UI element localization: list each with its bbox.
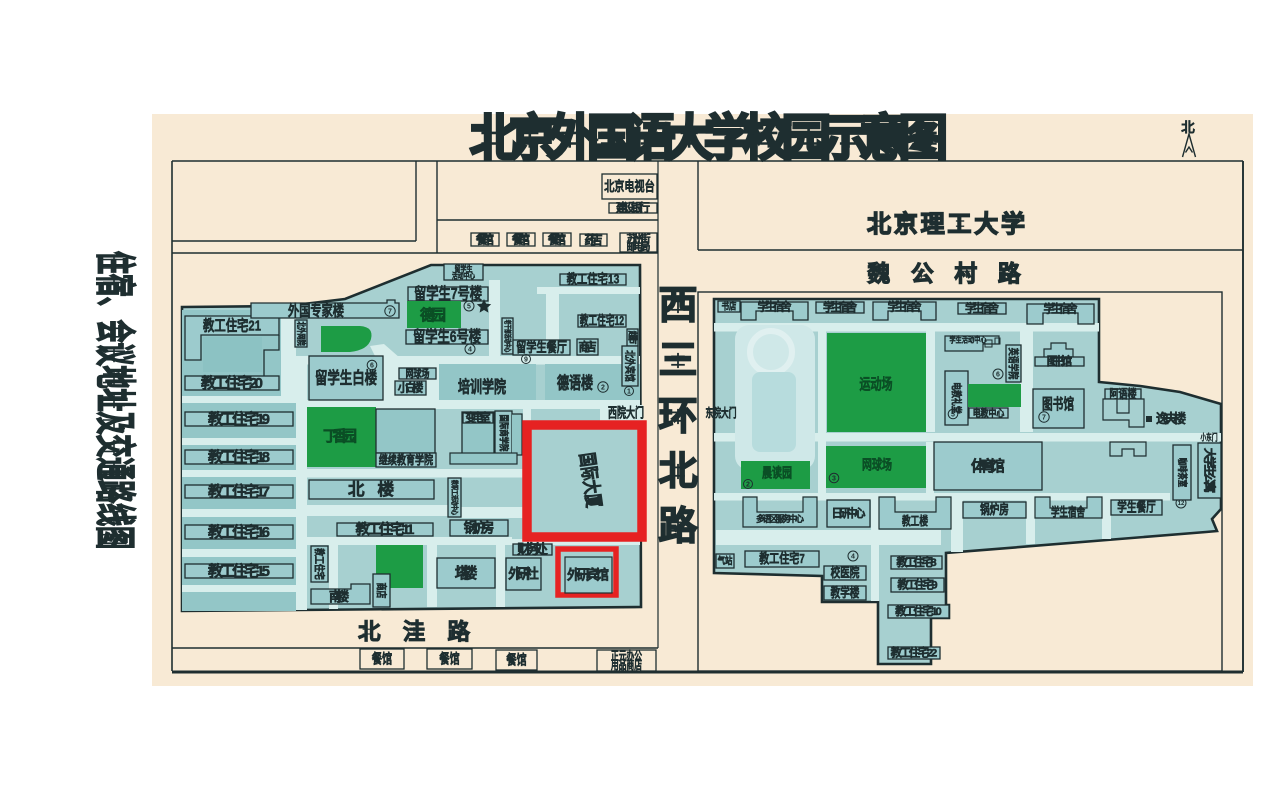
- svg-text:活动中心: 活动中心: [452, 271, 476, 281]
- svg-text:教工住宅19: 教工住宅19: [207, 410, 270, 428]
- svg-text:北京外国语大学校园示意图: 北京外国语大学校园示意图: [470, 111, 948, 166]
- svg-text:日研中心: 日研中心: [832, 506, 867, 520]
- svg-text:晨读园: 晨读园: [762, 464, 792, 480]
- svg-text:培训学院: 培训学院: [458, 376, 506, 396]
- svg-text:超市: 超市: [628, 330, 639, 345]
- svg-text:教工住宅16: 教工住宅16: [207, 523, 270, 541]
- svg-text:餐馆: 餐馆: [548, 231, 566, 246]
- svg-text:学生宿舍: 学生宿舍: [1051, 504, 1086, 519]
- svg-text:餐馆: 餐馆: [506, 651, 527, 667]
- svg-text:网球场: 网球场: [406, 367, 430, 380]
- svg-text:7: 7: [388, 309, 392, 316]
- svg-text:学生宿舍: 学生宿舍: [888, 300, 923, 314]
- svg-text:小东门: 小东门: [1200, 431, 1218, 442]
- svg-text:学生活动中心: 学生活动中心: [950, 335, 988, 345]
- svg-text:塔楼: 塔楼: [455, 564, 478, 582]
- svg-text:网球场: 网球场: [862, 456, 892, 472]
- svg-text:学生宿舍: 学生宿舍: [1044, 302, 1079, 316]
- svg-text:用品商店: 用品商店: [610, 657, 642, 672]
- svg-text:餐馆: 餐馆: [439, 650, 460, 666]
- svg-text:5: 5: [467, 304, 471, 311]
- svg-text:学生宿舍: 学生宿舍: [823, 300, 858, 314]
- svg-text:气站: 气站: [717, 554, 733, 567]
- svg-text:教工住宅: 教工住宅: [313, 547, 326, 580]
- svg-text:体育馆: 体育馆: [971, 457, 1005, 475]
- svg-text:教职工活动中心: 教职工活动中心: [450, 479, 459, 515]
- svg-text:7: 7: [1042, 415, 1046, 422]
- svg-text:教工住宅12: 教工住宅12: [579, 313, 624, 328]
- svg-text:外研社: 外研社: [508, 565, 539, 581]
- svg-text:学生宿舍: 学生宿舍: [758, 300, 793, 314]
- svg-text:财务处: 财务处: [516, 541, 548, 557]
- svg-text:药店: 药店: [584, 232, 602, 247]
- svg-text:学生餐厅: 学生餐厅: [1117, 500, 1156, 515]
- svg-text:建设银行: 建设银行: [616, 201, 650, 215]
- svg-text:变电室: 变电室: [465, 411, 490, 425]
- svg-text:国际商学院: 国际商学院: [497, 415, 510, 452]
- svg-text:1: 1: [627, 389, 631, 396]
- svg-text:9: 9: [524, 357, 528, 364]
- svg-text:咖啡茶室: 咖啡茶室: [1176, 458, 1189, 488]
- svg-text:电教中心: 电教中心: [973, 406, 1005, 419]
- svg-text:餐馆: 餐馆: [476, 231, 494, 246]
- svg-text:锅炉房: 锅炉房: [464, 519, 495, 535]
- svg-text:教工楼: 教工楼: [901, 513, 928, 528]
- svg-text:商店: 商店: [375, 583, 388, 599]
- svg-text:英语学院: 英语学院: [1007, 347, 1020, 380]
- svg-text:教工住宅7: 教工住宅7: [758, 551, 804, 566]
- svg-text:留学生6号楼: 留学生6号楼: [413, 327, 481, 346]
- svg-text:4: 4: [851, 554, 855, 561]
- svg-text:留学生7号楼: 留学生7号楼: [414, 284, 482, 303]
- svg-text:教工住宅9: 教工住宅9: [896, 578, 937, 592]
- svg-text:图书馆: 图书馆: [1042, 395, 1074, 413]
- svg-text:书店: 书店: [722, 300, 737, 313]
- svg-text:校医院: 校医院: [831, 565, 860, 580]
- svg-text:教工住宅17: 教工住宅17: [207, 482, 270, 500]
- svg-text:教工住宅22: 教工住宅22: [890, 646, 937, 660]
- svg-text:教工住宅11: 教工住宅11: [355, 521, 415, 538]
- svg-text:6: 6: [370, 363, 374, 370]
- svg-text:锅炉房: 锅炉房: [980, 502, 1009, 517]
- svg-text:2: 2: [601, 385, 605, 392]
- svg-text:住宿、会议地址及交通路线图: 住宿、会议地址及交通路线图: [92, 251, 138, 549]
- svg-text:西院大门: 西院大门: [608, 404, 644, 420]
- svg-text:老干部活动中心: 老干部活动中心: [503, 319, 512, 352]
- svg-text:图书馆: 图书馆: [1047, 354, 1072, 368]
- svg-text:教工住宅21: 教工住宅21: [202, 316, 261, 334]
- svg-text:学生宿舍: 学生宿舍: [965, 301, 1000, 315]
- svg-text:教工住宅8: 教工住宅8: [895, 555, 936, 569]
- svg-text:南楼: 南楼: [329, 589, 349, 604]
- svg-text:教工住宅13: 教工住宅13: [566, 272, 619, 287]
- svg-text:教工住宅18: 教工住宅18: [207, 448, 270, 466]
- svg-text:小白楼: 小白楼: [397, 381, 424, 395]
- svg-text:大学生公寓: 大学生公寓: [1203, 448, 1218, 493]
- svg-text:2: 2: [746, 482, 750, 489]
- svg-text:3: 3: [832, 476, 836, 483]
- svg-text:北外网院: 北外网院: [296, 321, 307, 345]
- svg-text:教工住宅15: 教工住宅15: [207, 562, 270, 580]
- svg-text:丁香园: 丁香园: [323, 427, 357, 445]
- svg-text:北外宾馆: 北外宾馆: [624, 350, 637, 382]
- svg-text:东院大门: 东院大门: [706, 405, 737, 420]
- svg-text:4: 4: [468, 347, 472, 354]
- svg-text:教工住宅10: 教工住宅10: [894, 604, 941, 618]
- svg-text:运动场: 运动场: [860, 375, 893, 393]
- svg-text:德园: 德园: [420, 306, 446, 324]
- svg-text:餐馆: 餐馆: [371, 650, 392, 666]
- svg-text:继续教育学院: 继续教育学院: [379, 452, 433, 467]
- svg-text:12: 12: [1178, 501, 1185, 507]
- svg-text:北: 北: [1181, 120, 1195, 135]
- svg-text:德语楼: 德语楼: [557, 372, 593, 392]
- svg-text:教学楼: 教学楼: [830, 585, 860, 600]
- svg-text:6: 6: [996, 372, 1000, 379]
- svg-text:5: 5: [951, 412, 955, 419]
- svg-text:多语区服务中心: 多语区服务中心: [756, 513, 804, 524]
- svg-text:外研宾馆: 外研宾馆: [567, 566, 609, 582]
- svg-text:商店: 商店: [578, 339, 596, 354]
- svg-text:餐馆: 餐馆: [512, 231, 530, 246]
- svg-text:留学生白楼: 留学生白楼: [315, 367, 377, 387]
- svg-text:北 楼: 北 楼: [348, 479, 395, 499]
- svg-text:留学生餐厅: 留学生餐厅: [516, 339, 567, 355]
- svg-text:外国专家楼: 外国专家楼: [287, 301, 344, 319]
- svg-text:教工住宅20: 教工住宅20: [200, 374, 263, 392]
- svg-text:邮电局: 邮电局: [627, 240, 651, 253]
- svg-text:北京电视台: 北京电视台: [604, 178, 655, 194]
- svg-text:逸夫楼: 逸夫楼: [1156, 411, 1186, 426]
